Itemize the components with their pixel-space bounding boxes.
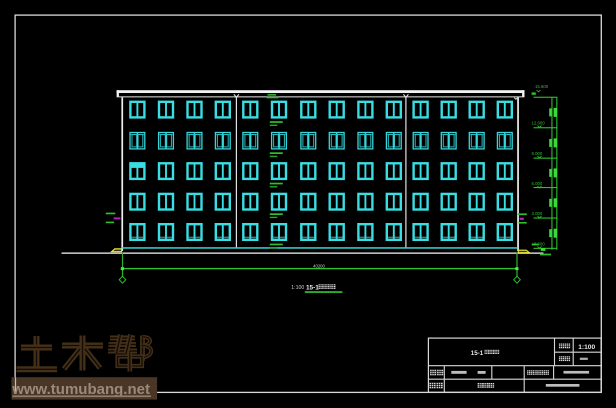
svg-text:15-1: 15-1 [471, 350, 484, 357]
svg-text:15-1: 15-1 [306, 284, 319, 291]
svg-text:3.000: 3.000 [532, 211, 543, 216]
svg-text:1:100: 1:100 [291, 285, 304, 291]
svg-text:1:100: 1:100 [578, 344, 595, 351]
svg-text:9.000: 9.000 [532, 151, 543, 156]
svg-text:12.000: 12.000 [532, 121, 546, 126]
svg-text:15.600: 15.600 [535, 84, 549, 89]
svg-text:6.000: 6.000 [532, 181, 543, 186]
svg-text:40200: 40200 [313, 263, 325, 268]
